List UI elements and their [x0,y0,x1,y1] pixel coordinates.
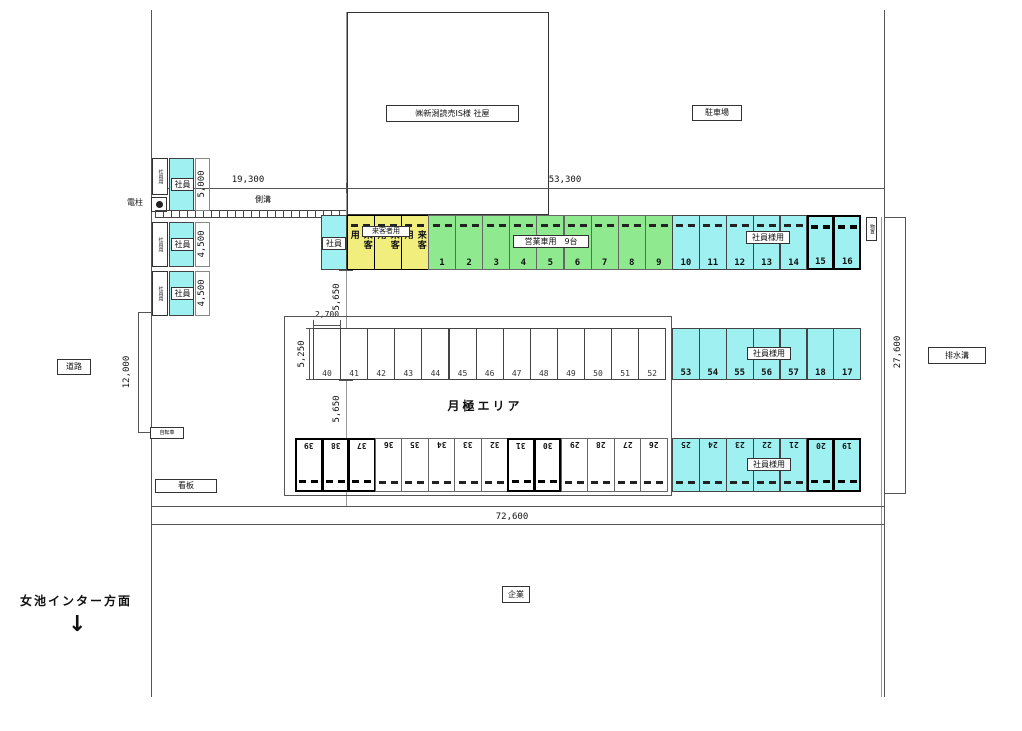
wheel-stop-marks [562,481,588,484]
wheel-stop-dash [499,224,506,227]
wheel-stop-marks [809,480,833,484]
wheel-stop-dash [607,224,614,227]
wheel-stop-marks [673,224,699,227]
wheel-stop-dash [591,481,598,484]
space-number: 46 [477,369,503,378]
wheel-stop-dash [568,224,575,227]
space-number: 14 [781,258,807,268]
dim-12000: 12,000 [121,342,133,402]
wheel-stop-dash [326,480,333,484]
dim-tick [884,493,906,494]
wheel-stop-marks [482,481,508,484]
space-2: 2 [455,215,483,270]
wheel-stop-marks [350,480,374,484]
space-3: 3 [482,215,510,270]
wheel-stop-dash [364,480,371,484]
staff-space-label: 社員 [171,238,194,251]
road-edge-line [151,10,152,697]
wheel-stop-dash [459,481,466,484]
space-number: 5 [537,258,563,268]
wheel-stop-dash [311,480,318,484]
wheel-stop-dash [538,480,545,484]
wheel-stop-marks [402,481,428,484]
space-34: 34 [428,438,456,492]
wheel-stop-marks [536,480,560,484]
storage-label: 物置 [866,217,877,241]
dim-27600: 27,600 [892,322,904,382]
wheel-stop-marks [781,481,807,484]
gutter-label: 側溝 [255,196,271,204]
space-15: 15 [807,215,835,270]
wheel-stop-dash [541,224,548,227]
space-38: 38 [322,438,350,492]
space-33: 33 [454,438,482,492]
wheel-stop-dash [553,224,560,227]
space-49: 49 [557,328,585,380]
space-number: 1 [429,258,455,268]
space-27: 27 [614,438,642,492]
roadside-strip-label: 社員用 [152,271,168,316]
wheel-stop-marks [565,224,591,227]
wheel-stop-dash [432,481,439,484]
bottom-dimension-line [151,524,884,525]
wheel-stop-dash [730,481,737,484]
gutter-hatch [155,210,346,218]
wheel-stop-dash [550,480,557,484]
space-10: 10 [672,215,700,270]
wheel-stop-dash [391,481,398,484]
wheel-stop-marks [429,481,455,484]
space-number: 35 [402,440,428,449]
wheel-stop-dash [850,225,857,229]
wheel-stop-marks [727,481,753,484]
space-41: 41 [340,328,368,380]
space-number: 25 [673,440,699,449]
space-number: 22 [754,440,780,449]
space-number: 57 [781,368,807,378]
wheel-stop-dash [757,481,764,484]
space-16: 16 [833,215,861,270]
wheel-stop-dash [338,480,345,484]
visitor-space: 来客用 [347,215,375,270]
space-number: 29 [562,440,588,449]
space-number: 36 [376,440,402,449]
business-overlay-label: 営業車用 9台 [513,235,589,248]
wheel-stop-dash [715,224,722,227]
space-number: 55 [727,368,753,378]
wheel-stop-dash [417,481,424,484]
space-number: 13 [754,258,780,268]
signboard-label: 看板 [155,479,217,493]
wheel-stop-dash [796,224,803,227]
wheel-stop-dash [703,224,710,227]
top-dimension-line [151,188,884,189]
space-number: 32 [482,440,508,449]
dim-column [195,222,210,267]
staff-cell-label: 社員 [322,237,346,250]
dim-19300: 19,300 [200,174,296,186]
wheel-stop-marks [510,224,536,227]
space-51: 51 [611,328,639,380]
staff-overlay-label-row2: 社員様用 [747,347,791,360]
wheel-stop-marks [809,225,833,229]
space-number: 16 [835,257,859,267]
space-18: 18 [807,328,835,380]
wheel-stop-dash [784,224,791,227]
space-number: 27 [615,440,641,449]
wheel-stop-marks [509,480,533,484]
wheel-stop-dash [526,224,533,227]
wheel-stop-dash [850,480,857,484]
space-number: 51 [612,369,638,378]
space-35: 35 [401,438,429,492]
space-number: 39 [297,441,321,450]
space-number: 3 [483,258,509,268]
wheel-stop-dash [838,480,845,484]
space-number: 54 [700,368,726,378]
space-30: 30 [534,438,562,492]
space-37: 37 [348,438,376,492]
wheel-stop-marks [641,481,667,484]
wheel-stop-dash [838,225,845,229]
wheel-stop-dash [595,224,602,227]
wheel-stop-dash [742,481,749,484]
wheel-stop-dash [485,481,492,484]
space-54: 54 [699,328,727,380]
space-36: 36 [375,438,403,492]
space-number: 24 [700,440,726,449]
wheel-stop-dash [299,480,306,484]
monthly-area-title: 月極エリア [420,397,550,414]
space-53: 53 [672,328,700,380]
space-9: 9 [645,215,673,270]
space-number: 38 [324,441,348,450]
wheel-stop-dash [471,481,478,484]
staff-overlay-label-row1: 社員様用 [746,231,790,244]
visitor-space: 来客用 [401,215,429,270]
wheel-stop-dash [703,481,710,484]
space-number: 44 [422,369,448,378]
space-number: 50 [585,369,611,378]
space-number: 49 [558,369,584,378]
space-number: 45 [450,369,476,378]
space-32: 32 [481,438,509,492]
wheel-stop-marks [588,481,614,484]
space-number: 43 [395,369,421,378]
wheel-stop-dash [688,481,695,484]
space-number: 12 [727,258,753,268]
wheel-stop-marks [592,224,618,227]
space-26: 26 [640,438,668,492]
wheel-stop-dash [656,481,663,484]
space-number: 17 [834,368,860,378]
dim-tick [884,183,885,193]
east-boundary-line [884,10,885,697]
wheel-stop-dash [352,480,359,484]
space-39: 39 [295,438,323,492]
wheel-stop-dash [811,225,818,229]
space-number: 8 [619,258,645,268]
wheel-stop-dash [796,481,803,484]
dim-column [195,271,210,316]
space-number: 26 [641,440,667,449]
road-label: 道路 [57,359,91,375]
wheel-stop-dash [497,481,504,484]
wheel-stop-dash [603,481,610,484]
dim-tick [884,217,906,218]
dim-tick [138,312,152,313]
space-20: 20 [807,438,835,492]
space-50: 50 [584,328,612,380]
dim-tick [151,519,152,529]
wheel-stop-dash [577,481,584,484]
wheel-stop-dash [630,481,637,484]
space-number: 42 [368,369,394,378]
wheel-stop-marks [429,224,455,227]
space-46: 46 [476,328,504,380]
wheel-stop-dash [769,224,776,227]
space-number: 21 [781,440,807,449]
wheel-stop-dash [649,224,656,227]
wheel-stop-marks [700,481,726,484]
drain-label: 排水溝 [928,347,986,364]
space-29: 29 [561,438,589,492]
wheel-stop-marks [700,224,726,227]
space-8: 8 [618,215,646,270]
wheel-stop-marks [537,224,563,227]
space-44: 44 [421,328,449,380]
parking-lot-label: 駐車場 [692,105,742,121]
space-1: 1 [428,215,456,270]
wheel-stop-marks [324,480,348,484]
wheel-stop-dash [757,224,764,227]
wheel-stop-dash [433,224,440,227]
wheel-stop-dash [811,480,818,484]
wheel-stop-marks [646,224,672,227]
wheel-stop-dash [644,481,651,484]
wheel-stop-dash [445,224,452,227]
drain-channel-line [881,217,882,697]
dim-tick [884,519,885,529]
space-number: 33 [455,440,481,449]
space-42: 42 [367,328,395,380]
building-label: ㈱新潟読売IS様 社屋 [386,105,519,122]
wheel-stop-dash [524,480,531,484]
wheel-stop-marks [835,225,859,229]
space-31: 31 [507,438,535,492]
space-number: 7 [592,258,618,268]
staff-space-label: 社員 [171,287,194,300]
visitor-overlay-label: 来客者用 [362,226,410,237]
wheel-stop-marks [619,224,645,227]
wheel-stop-dash [688,224,695,227]
roadside-strip-label: 社員用 [152,158,168,195]
space-number: 53 [673,368,699,378]
wheel-stop-dash [676,224,683,227]
wheel-stop-dash [472,224,479,227]
dim-tick [346,183,347,193]
wheel-stop-dash [634,224,641,227]
wheel-stop-dash [823,225,830,229]
wheel-stop-dash [444,481,451,484]
wheel-stop-marks [781,224,807,227]
space-52: 52 [638,328,666,380]
dim-12000-line [138,312,139,432]
dim-27600-line [905,217,906,493]
wheel-stop-dash [460,224,467,227]
wheel-stop-marks [456,224,482,227]
space-25: 25 [672,438,700,492]
space-number: 28 [588,440,614,449]
wheel-stop-dash [417,224,424,227]
space-11: 11 [699,215,727,270]
wheel-stop-marks [376,481,402,484]
space-number: 37 [350,441,374,450]
space-number: 19 [835,441,859,450]
dim-72600: 72,600 [464,511,560,523]
direction-label: 女池インター方面 [20,592,132,609]
space-24: 24 [699,438,727,492]
wheel-stop-dash [742,224,749,227]
wheel-stop-dash [565,481,572,484]
pole-circle-icon [156,201,163,208]
down-arrow-icon: ↓ [68,612,86,637]
space-number: 56 [754,368,780,378]
wheel-stop-marks [727,224,753,227]
wheel-stop-dash [676,481,683,484]
wheel-stop-dash [618,481,625,484]
wheel-stop-dash [405,481,412,484]
south-boundary-line [151,506,884,507]
space-number: 30 [536,441,560,450]
space-number: 23 [727,440,753,449]
wheel-stop-dash [823,480,830,484]
wheel-stop-dash [379,481,386,484]
space-number: 18 [808,368,834,378]
space-48: 48 [530,328,558,380]
space-number: 52 [639,369,665,378]
space-40: 40 [313,328,341,380]
space-number: 48 [531,369,557,378]
wheel-stop-marks [615,481,641,484]
wheel-stop-dash [715,481,722,484]
wheel-stop-marks [673,481,699,484]
space-43: 43 [394,328,422,380]
space-7: 7 [591,215,619,270]
space-number: 41 [341,369,367,378]
wheel-stop-marks [297,480,321,484]
space-number: 15 [809,257,833,267]
space-number: 34 [429,440,455,449]
space-number: 2 [456,258,482,268]
staff-overlay-label-row3: 社員様用 [747,458,791,471]
space-number: 40 [314,369,340,378]
wheel-stop-dash [784,481,791,484]
space-number: 47 [504,369,530,378]
wheel-stop-dash [487,224,494,227]
visitor-space: 来客用 [374,215,402,270]
wheel-stop-dash [351,224,358,227]
wheel-stop-dash [661,224,668,227]
wheel-stop-marks [835,480,859,484]
bicycle-label: 自転車 [150,427,184,439]
space-number: 11 [700,258,726,268]
wheel-stop-marks [455,481,481,484]
space-28: 28 [587,438,615,492]
space-17: 17 [833,328,861,380]
dim-tick [339,270,353,271]
space-number: 10 [673,258,699,268]
space-number: 20 [809,441,833,450]
space-19: 19 [833,438,861,492]
roadside-strip-label: 社員用 [152,222,168,267]
wheel-stop-dash [769,481,776,484]
space-number: 6 [565,258,591,268]
space-47: 47 [503,328,531,380]
wheel-stop-marks [754,481,780,484]
wheel-stop-marks [754,224,780,227]
site-plan-canvas: ㈱新潟読売IS様 社屋 駐車場 19,300 53,300 電柱 側溝 5,00… [0,0,1022,731]
staff-space-label: 社員 [171,178,194,191]
space-number: 9 [646,258,672,268]
dim-column [195,158,210,211]
company-label: 企業 [502,586,530,603]
wheel-stop-dash [730,224,737,227]
space-number: 4 [510,258,536,268]
wheel-stop-dash [580,224,587,227]
pole-label: 電柱 [127,199,143,207]
wheel-stop-dash [622,224,629,227]
wheel-stop-dash [514,224,521,227]
space-number: 31 [509,441,533,450]
dim-53300: 53,300 [517,174,613,186]
wheel-stop-marks [483,224,509,227]
wheel-stop-dash [512,480,519,484]
space-45: 45 [449,328,477,380]
